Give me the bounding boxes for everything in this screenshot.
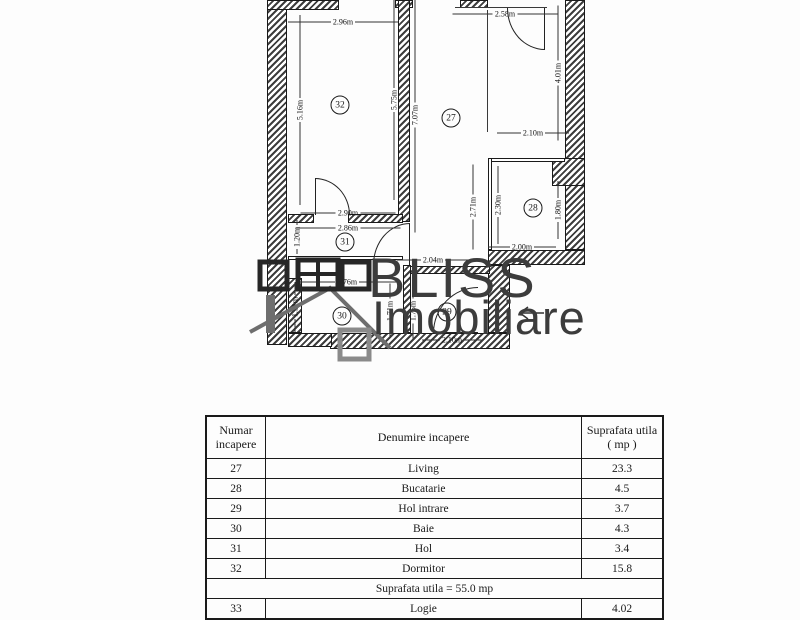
table-total-row: Suprafata utila = 55.0 mp [206,579,663,599]
table-row: 31 Hol 3.4 [206,539,663,559]
cell-room-area: 4.02 [582,599,664,620]
cell-room-number: 31 [206,539,266,559]
room-area-table: Numar incapere Denumire incapere Suprafa… [205,415,664,620]
table-row: 28 Bucatarie 4.5 [206,479,663,499]
dimension-label: 2.86m [296,224,401,233]
cell-room-number: 32 [206,559,266,579]
cell-room-area: 23.3 [582,459,664,479]
cell-room-name: Logie [266,599,582,620]
cell-room-number: 29 [206,499,266,519]
cell-room-area: 15.8 [582,559,664,579]
wall-segment [398,0,410,222]
partition-wall [490,158,565,162]
wall-segment [565,0,585,250]
cell-room-name: Bucatarie [266,479,582,499]
cell-room-name: Dormitor [266,559,582,579]
dimension-label: 2.90m [301,209,396,218]
table-header-room-number: Numar incapere [206,416,266,459]
partition-wall [488,158,492,250]
table-header-room-name: Denumire incapere [266,416,582,459]
dimension-label: 4.01m [554,6,563,141]
cell-room-name: Baie [266,519,582,539]
table-row: 30 Baie 4.3 [206,519,663,539]
dimension-line [487,10,488,132]
dimension-label: 2.71m [469,165,478,250]
cell-room-number: 30 [206,519,266,539]
dimension-label: 2.96m [288,18,398,27]
cell-room-area: 3.7 [582,499,664,519]
wall-segment [267,0,339,10]
cell-total-area: Suprafata utila = 55.0 mp [206,579,663,599]
table-row: 32 Dormitor 15.8 [206,559,663,579]
cell-room-number: 33 [206,599,266,620]
room-number-31: 31 [336,233,355,252]
table-row: 29 Hol intrare 3.7 [206,499,663,519]
scanned-floorplan-page: { "watermark": { "brand": "BLISS", "bran… [0,0,800,600]
watermark-brand-subtext: Imobiliare [372,296,586,339]
table-header-row: Numar incapere Denumire incapere Suprafa… [206,416,663,459]
cell-room-name: Living [266,459,582,479]
cell-room-area: 4.5 [582,479,664,499]
table-header-area: Suprafata utila ( mp ) [582,416,664,459]
table-row: 33 Logie 4.02 [206,599,663,620]
dimension-label: 5.75m [390,0,399,200]
cell-room-number: 28 [206,479,266,499]
room-number-27: 27 [442,109,461,128]
dimension-label: 7.07m [411,0,420,233]
cell-room-name: Hol intrare [266,499,582,519]
table-row: 27 Living 23.3 [206,459,663,479]
dimension-label: 1.80m [554,181,563,239]
dimension-label: 5.16m [296,15,305,205]
room-number-28: 28 [524,199,543,218]
room-number-32: 32 [331,96,350,115]
cell-room-number: 27 [206,459,266,479]
dimension-label: 2.30m [494,166,503,244]
cell-room-area: 4.3 [582,519,664,539]
cell-room-name: Hol [266,539,582,559]
cell-room-area: 3.4 [582,539,664,559]
dimension-label: 2.58m [453,10,558,19]
